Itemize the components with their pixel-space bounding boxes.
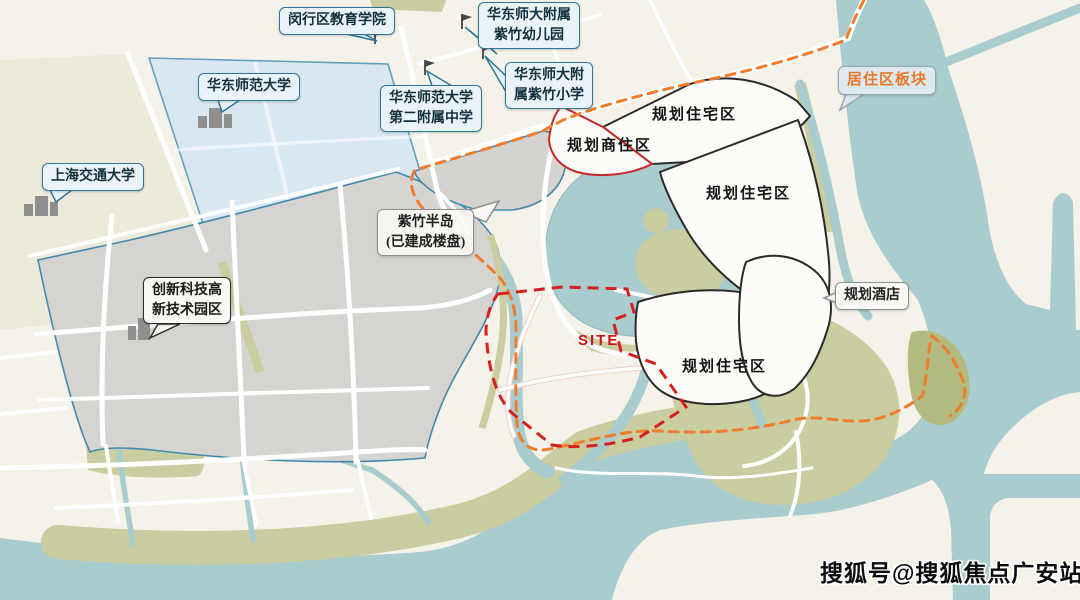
label-site: SITE [578,332,619,350]
callout-zizhu-peninsula: 紫竹半岛 (已建成楼盘) [377,209,474,256]
callout-residential-block: 居住区板块 [838,66,936,95]
label-planned-residential-2: 规划住宅区 [706,185,791,203]
watermark-sohu: 搜狐号@搜狐焦点广安站 [820,560,1080,588]
site-plan-map: 闵行区教育学院 华东师大附属 紫竹幼儿园 华东师范大学 第二附属中学 华东师大附… [0,0,1080,600]
callout-planned-hotel: 规划酒店 [835,282,909,310]
callout-innovation-tech-park: 创新科技高 新技术园区 [143,277,231,324]
callout-ecnu-university: 华东师范大学 [198,73,300,101]
callout-sjtu-university: 上海交通大学 [42,163,144,191]
label-planned-residential-3: 规划住宅区 [682,358,767,376]
label-planned-commercial-residential: 规划商住区 [567,137,652,155]
callout-ecnu-kindergarten: 华东师大附属 紫竹幼儿园 [478,2,580,49]
callout-ecnu-no2-high-school: 华东师范大学 第二附属中学 [380,85,482,132]
callout-ecnu-zizhu-primary: 华东师大附 属紫竹小学 [505,62,593,109]
label-planned-residential-1: 规划住宅区 [652,106,737,124]
callout-minhang-education-college: 闵行区教育学院 [279,7,395,35]
